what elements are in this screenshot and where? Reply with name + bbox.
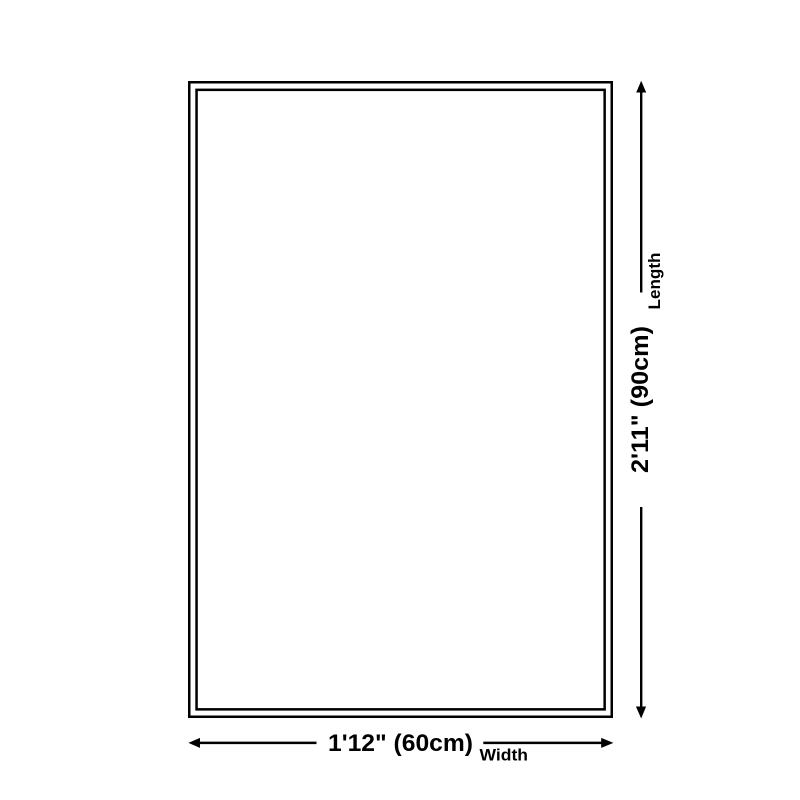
svg-text:1'12" (60cm): 1'12" (60cm) <box>328 730 473 757</box>
svg-text:2'11" (90cm): 2'11" (90cm) <box>627 326 654 473</box>
svg-text:Width: Width <box>480 747 529 765</box>
svg-text:Length: Length <box>646 253 664 310</box>
